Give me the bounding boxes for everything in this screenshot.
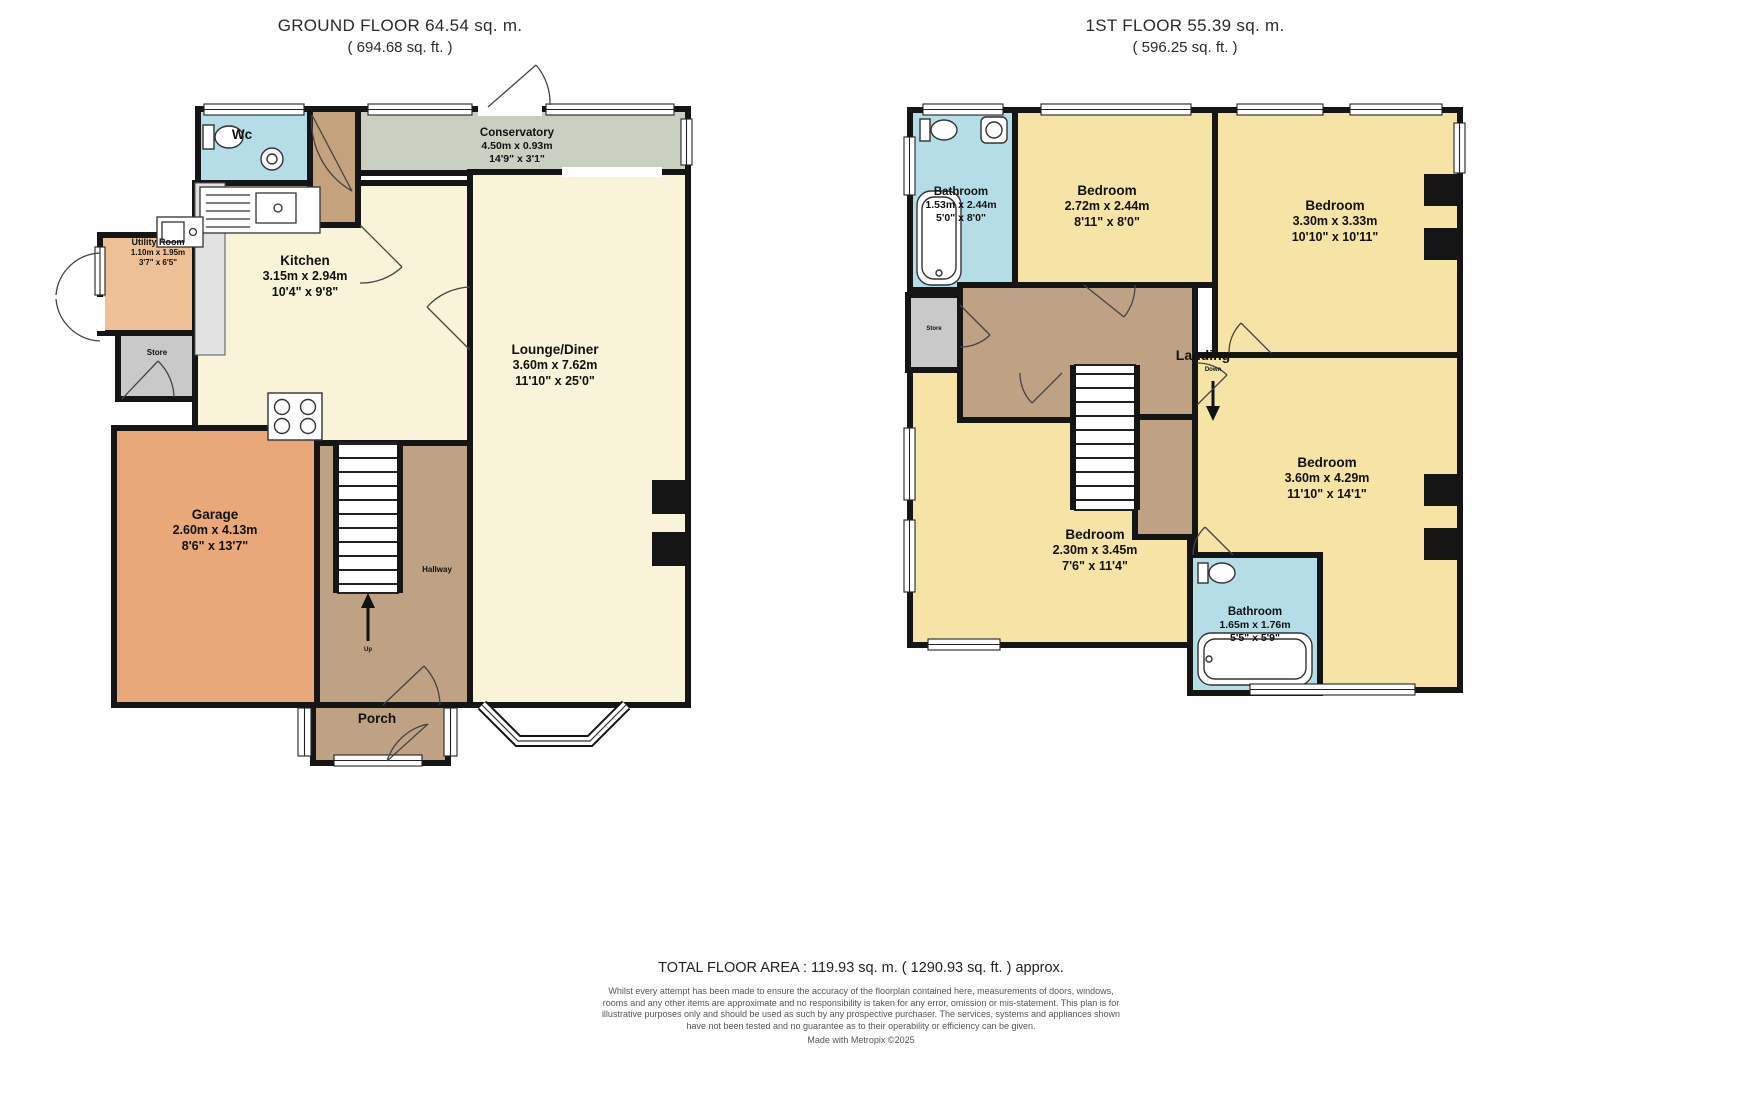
first-floor-title-line2: ( 596.25 sq. ft. ) bbox=[1085, 39, 1284, 56]
room-label-conservatory: Conservatory 4.50m x 0.93m 14'9" x 3'1" bbox=[480, 126, 554, 166]
ground-rooms bbox=[100, 109, 688, 763]
room-label-utility: Utility Room 1.10m x 1.95m 3'7" x 6'5" bbox=[131, 237, 185, 267]
room-label-bedroom4: Bedroom 3.60m x 4.29m 11'10" x 14'1" bbox=[1285, 455, 1370, 502]
ground-floor-drawing bbox=[55, 50, 745, 767]
room-label-landing: Landing bbox=[1176, 347, 1230, 364]
toilet-bowl-icon bbox=[931, 120, 957, 140]
footer: TOTAL FLOOR AREA : 119.93 sq. m. ( 1290.… bbox=[576, 960, 1146, 1045]
floorplan-page: GROUND FLOOR 64.54 sq. m. ( 694.68 sq. f… bbox=[0, 0, 1753, 1107]
ground-floor-plan: Wc Conservatory 4.50m x 0.93m 14'9" x 3'… bbox=[100, 95, 700, 767]
first-floor-title: 1ST FLOOR 55.39 sq. m. ( 596.25 sq. ft. … bbox=[1085, 16, 1284, 56]
first-floor-drawing bbox=[880, 80, 1480, 710]
total-floor-area: TOTAL FLOOR AREA : 119.93 sq. m. ( 1290.… bbox=[576, 960, 1146, 976]
room-label-bedroom2: Bedroom 3.30m x 3.33m 10'10" x 10'11" bbox=[1292, 198, 1379, 245]
room-label-bathroom1: Bathroom 1.53m x 2.44m 5'0" x 8'0" bbox=[925, 185, 996, 225]
room-label-bedroom3: Bedroom 2.30m x 3.45m 7'6" x 11'4" bbox=[1053, 527, 1138, 574]
toilet-icon bbox=[203, 125, 214, 149]
room-label-store-first: Store bbox=[926, 326, 941, 333]
disclaimer-text: Whilst every attempt has been made to en… bbox=[597, 986, 1125, 1033]
first-floor-plan: Bathroom 1.53m x 2.44m 5'0" x 8'0" Bedro… bbox=[895, 95, 1465, 695]
room-label-bathroom2: Bathroom 1.65m x 1.76m 5'5" x 5'9" bbox=[1219, 605, 1290, 645]
room-store-ground bbox=[118, 333, 195, 399]
stairs-up-label: Up bbox=[364, 647, 372, 654]
bay-window bbox=[482, 705, 626, 741]
room-lounge-diner bbox=[470, 172, 688, 705]
credit-text: Made with Metropix ©2025 bbox=[576, 1035, 1146, 1045]
room-garage bbox=[114, 428, 317, 705]
room-label-wc: Wc bbox=[232, 127, 252, 143]
room-label-store-ground: Store bbox=[147, 348, 167, 358]
toilet-bowl-icon bbox=[1209, 563, 1235, 583]
room-wc bbox=[198, 109, 310, 183]
room-label-hallway: Hallway bbox=[422, 565, 452, 575]
first-floor-title-line1: 1ST FLOOR 55.39 sq. m. bbox=[1085, 16, 1284, 36]
room-landing-corridor bbox=[1135, 417, 1195, 537]
toilet-icon bbox=[1198, 563, 1208, 583]
room-label-bedroom1: Bedroom 2.72m x 2.44m 8'11" x 8'0" bbox=[1065, 183, 1150, 230]
room-label-kitchen: Kitchen 3.15m x 2.94m 10'4" x 9'8" bbox=[263, 253, 348, 300]
room-label-lounge-diner: Lounge/Diner 3.60m x 7.62m 11'10" x 25'0… bbox=[512, 342, 599, 389]
toilet-icon bbox=[920, 119, 930, 141]
ground-floor-title-line1: GROUND FLOOR 64.54 sq. m. bbox=[278, 16, 523, 36]
stove-icon bbox=[268, 393, 322, 440]
stairs-down-label: Down bbox=[1205, 367, 1221, 374]
kitchen-sink-icon bbox=[200, 187, 320, 233]
room-label-porch: Porch bbox=[358, 711, 396, 727]
room-label-garage: Garage 2.60m x 4.13m 8'6" x 13'7" bbox=[173, 507, 258, 554]
